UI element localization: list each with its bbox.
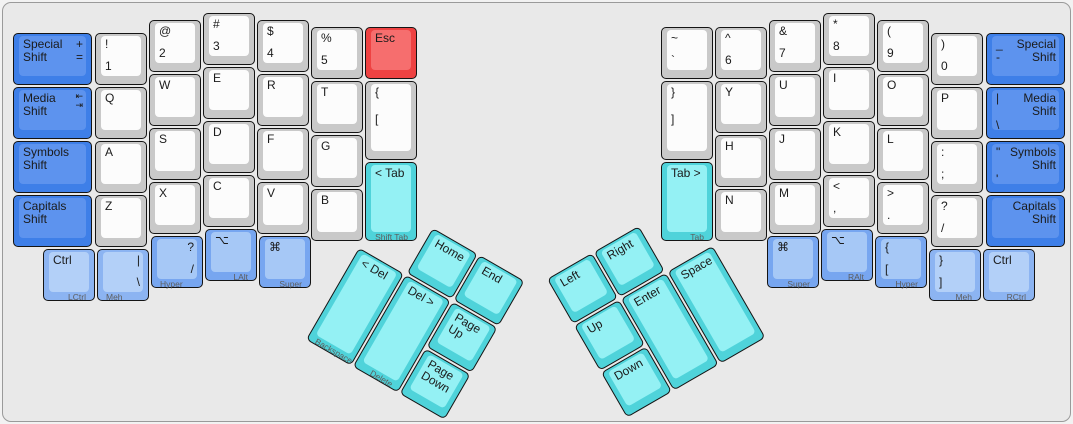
key-7-legend-bottom-left: 7 <box>779 47 786 60</box>
key-a-legend-row-top: A <box>105 146 138 159</box>
key-hyper-left-front-legend-left: Hyper <box>160 280 183 289</box>
key-media-shift-right-face: |Media Shift\ <box>992 90 1059 130</box>
key-hyper-left-legend-row-bottom: / <box>161 263 194 276</box>
key-k[interactable]: K <box>823 121 875 173</box>
key-capitals-shift-left-face: Capitals Shift <box>19 198 86 238</box>
key-lctrl-front-legend-right: LCtrl <box>68 293 86 302</box>
key-2[interactable]: @2 <box>149 20 201 72</box>
key-capitals-shift-right[interactable]: Capitals Shift <box>986 195 1065 247</box>
key-v-legend-row-top: V <box>267 187 300 200</box>
key-left-face: Left <box>553 259 608 314</box>
key-0-legend-top-left: ) <box>941 38 945 51</box>
key-right-legend-top-left: Right <box>604 237 635 263</box>
key-super-right[interactable]: ⌘Super <box>767 236 819 288</box>
key-special-shift-right[interactable]: _ -Special Shift <box>986 33 1065 85</box>
key-rctrl-legend-row-top: Ctrl <box>993 254 1026 267</box>
key-capitals-shift-left-legend-row-top: Capitals Shift <box>23 200 83 227</box>
key-symbols-shift-left[interactable]: Symbols Shift <box>13 141 92 193</box>
key-open-bracket-inner-left-legend-row-top: { <box>375 86 408 99</box>
key-5[interactable]: %5 <box>311 27 363 79</box>
key-meh-left-legend-row-top: | <box>107 254 140 267</box>
key-7-legend-row-bottom: 7 <box>779 47 812 60</box>
key-w-face: W <box>155 77 195 117</box>
key-m-legend-top-left: M <box>779 187 789 200</box>
key-y-face: Y <box>721 84 761 124</box>
key-meh-left[interactable]: |\Meh <box>97 249 149 301</box>
key-super-right-front-legend-right: Super <box>787 280 810 289</box>
key-esc-face: Esc <box>371 30 411 70</box>
key-close-bracket-inner-right[interactable]: }] <box>661 81 713 160</box>
key-meh-right-front-legend-right: Meh <box>955 293 972 302</box>
key-l-legend-top-left: L <box>887 133 894 146</box>
key-tab-right-legend-row-top: Tab > <box>671 167 704 180</box>
key-2-legend-row-bottom: 2 <box>159 47 192 60</box>
key-e-face: E <box>209 70 249 110</box>
key-9-face: (9 <box>883 23 923 63</box>
key-c[interactable]: C <box>203 175 255 227</box>
key-o-face: O <box>883 77 923 117</box>
key-hyper-left[interactable]: ?/Hyper <box>151 236 203 288</box>
key-special-shift-left-legend-row-top: Special Shift+ = <box>23 38 83 65</box>
key-shift-tab[interactable]: < TabShift Tab <box>365 162 417 241</box>
key-special-shift-left-legend-top-left: Special Shift <box>23 38 62 65</box>
key-b[interactable]: B <box>311 189 363 241</box>
key-media-shift-left-legend-row-top: Media Shift⇤ ⇥ <box>23 92 83 119</box>
key-home-legend-row-top: Home <box>432 237 467 265</box>
key-open-bracket-inner-left[interactable]: {[ <box>365 81 417 160</box>
key-rctrl[interactable]: CtrlRCtrl <box>983 249 1035 301</box>
key-k-legend-top-left: K <box>833 126 841 139</box>
key-meh-right[interactable]: }]Meh <box>929 249 981 301</box>
key-close-bracket-inner-right-legend-bottom-left: ] <box>671 113 674 126</box>
key-2-legend-bottom-left: 2 <box>159 47 166 60</box>
key-space-legend-top-left: Space <box>678 254 714 283</box>
key-semicolon[interactable]: :; <box>931 141 983 193</box>
key-semicolon-face: :; <box>937 144 977 184</box>
key-slash-legend-row-bottom: / <box>941 222 974 235</box>
key-u[interactable]: U <box>769 74 821 126</box>
key-r-face: R <box>263 77 303 117</box>
key-symbols-shift-right-face: "Symbols Shift' <box>992 144 1059 184</box>
key-symbols-shift-left-legend-row-top: Symbols Shift <box>23 146 83 173</box>
key-2-legend-row-top: @ <box>159 25 192 38</box>
key-page-down-legend-row-top: Page Down <box>418 358 460 398</box>
key-rctrl-legend-top-left: Ctrl <box>993 254 1012 267</box>
key-super-right-face: ⌘ <box>773 239 813 279</box>
key-9-legend-row-top: ( <box>887 25 920 38</box>
key-hyper-left-legend-bottom-right: / <box>191 263 194 276</box>
key-meh-right-face: }] <box>935 252 975 292</box>
key-p-face: P <box>937 90 977 130</box>
key-7-face: &7 <box>775 23 815 63</box>
key-a-legend-top-left: A <box>105 146 113 159</box>
key-ralt-face: ⌥ <box>827 232 867 272</box>
key-media-shift-left-legend-top-left: Media Shift <box>23 92 56 119</box>
key-special-shift-right-legend-top-right: Special Shift <box>1017 38 1056 65</box>
key-f-legend-top-left: F <box>267 133 274 146</box>
key-symbols-shift-right[interactable]: "Symbols Shift' <box>986 141 1065 193</box>
key-m[interactable]: M <box>769 182 821 234</box>
key-period-legend-bottom-left: . <box>887 209 890 222</box>
key-6[interactable]: ^6 <box>715 27 767 79</box>
key-x-legend-row-top: X <box>159 187 192 200</box>
key-lalt-front-legend-right: LAlt <box>233 273 248 282</box>
key-5-legend-bottom-left: 5 <box>321 54 328 67</box>
key-super-right-legend-row-top: ⌘ <box>777 241 810 254</box>
key-esc-legend-row-top: Esc <box>375 32 408 45</box>
key-o-legend-top-left: O <box>887 79 896 92</box>
key-period[interactable]: >. <box>877 182 929 234</box>
key-0-face: )0 <box>937 36 977 76</box>
key-0[interactable]: )0 <box>931 33 983 85</box>
key-hyper-right-front-legend-right: Hyper <box>895 280 918 289</box>
key-7-legend-top-left: & <box>779 25 787 38</box>
key-r[interactable]: R <box>257 74 309 126</box>
key-media-shift-left[interactable]: Media Shift⇤ ⇥ <box>13 87 92 139</box>
key-esc[interactable]: Esc <box>365 27 417 79</box>
key-super-left[interactable]: ⌘Super <box>259 236 311 288</box>
key-page-up-legend-row-top: Page Up <box>445 311 487 351</box>
key-h-face: H <box>721 138 761 178</box>
key-media-shift-right-legend-row-bottom: \ <box>996 119 1056 130</box>
key-tab-right-face: Tab > <box>667 165 707 232</box>
key-shift-tab-face: < Tab <box>371 165 411 232</box>
key-v-legend-top-left: V <box>267 187 275 200</box>
key-grave[interactable]: ~` <box>661 27 713 79</box>
key-left-legend-row-top: Left <box>558 262 593 290</box>
key-h-legend-row-top: H <box>725 140 758 153</box>
key-j-face: J <box>775 131 815 171</box>
key-shift-tab-legend-top-left: < Tab <box>375 167 404 180</box>
key-open-bracket-inner-left-face: {[ <box>371 84 411 151</box>
key-semicolon-legend-row-top: : <box>941 146 974 159</box>
key-i[interactable]: I <box>823 67 875 119</box>
key-3-legend-row-bottom: 3 <box>213 40 246 53</box>
key-media-shift-right-legend-bottom-left: \ <box>996 119 999 130</box>
key-6-legend-row-bottom: 6 <box>725 54 758 67</box>
key-e-legend-row-top: E <box>213 72 246 85</box>
key-8-legend-bottom-left: 8 <box>833 40 840 53</box>
key-period-legend-top-left: > <box>887 187 894 200</box>
key-comma-legend-row-top: < <box>833 180 866 193</box>
key-period-legend-row-bottom: . <box>887 209 920 222</box>
key-capitals-shift-left-legend-top-left: Capitals Shift <box>23 200 66 227</box>
key-j-legend-row-top: J <box>779 133 812 146</box>
key-m-face: M <box>775 185 815 225</box>
key-f-legend-row-top: F <box>267 133 300 146</box>
key-7[interactable]: &7 <box>769 20 821 72</box>
key-meh-left-face: |\ <box>103 252 143 292</box>
key-media-shift-right[interactable]: |Media Shift\ <box>986 87 1065 139</box>
key-lctrl-legend-top-left: Ctrl <box>53 254 72 267</box>
key-hyper-left-legend-top-right: ? <box>187 241 194 254</box>
key-s-legend-top-left: S <box>159 133 167 146</box>
key-n-face: N <box>721 192 761 232</box>
key-esc-legend-top-left: Esc <box>375 32 395 45</box>
key-t-legend-top-left: T <box>321 86 328 99</box>
key-4-face: $4 <box>263 23 303 63</box>
key-lalt-face: ⌥ <box>211 232 251 272</box>
key-g[interactable]: G <box>311 135 363 187</box>
key-j-legend-top-left: J <box>779 133 785 146</box>
key-space-legend-row-top: Space <box>678 255 713 283</box>
command-icon: ⌘ <box>269 241 281 254</box>
key-t-legend-row-top: T <box>321 86 354 99</box>
key-ralt[interactable]: ⌥RAlt <box>821 229 873 281</box>
key-t-face: T <box>317 84 357 124</box>
key-u-legend-top-left: U <box>779 79 788 92</box>
key-5-legend-top-left: % <box>321 32 332 45</box>
key-meh-left-front-legend-left: Meh <box>106 293 123 302</box>
option-icon: ⌥ <box>215 234 229 247</box>
key-n[interactable]: N <box>715 189 767 241</box>
key-open-bracket-inner-left-legend-bottom-left: [ <box>375 113 378 126</box>
key-y-legend-top-left: Y <box>725 86 733 99</box>
key-hyper-right-legend-top-left: { <box>885 241 889 254</box>
key-2-legend-top-left: @ <box>159 25 171 38</box>
key-g-face: G <box>317 138 357 178</box>
key-3-legend-row-top: # <box>213 18 246 31</box>
key-8-legend-top-left: * <box>833 18 838 31</box>
key-hyper-right-legend-bottom-left: [ <box>885 263 888 276</box>
key-u-face: U <box>775 77 815 117</box>
key-symbols-shift-right-legend-bottom-left: ' <box>996 173 998 184</box>
key-4-legend-top-left: $ <box>267 25 274 38</box>
key-grave-legend-row-top: ~ <box>671 32 704 45</box>
key-slash[interactable]: ?/ <box>931 195 983 247</box>
key-lctrl-face: Ctrl <box>49 252 89 292</box>
key-s[interactable]: S <box>149 128 201 180</box>
key-ralt-legend-row-top: ⌥ <box>831 234 864 247</box>
key-grave-face: ~` <box>667 30 707 70</box>
key-page-down-legend-top-left: Page Down <box>418 358 460 398</box>
key-meh-left-legend-top-right: | <box>137 254 140 267</box>
key-period-face: >. <box>883 185 923 225</box>
key-a-face: A <box>101 144 141 184</box>
key-1-legend-top-left: ! <box>105 38 108 51</box>
key-hyper-right[interactable]: {[Hyper <box>875 236 927 288</box>
key-media-shift-right-legend-top-right: Media Shift <box>1023 92 1056 119</box>
key-1[interactable]: !1 <box>95 33 147 85</box>
key-n-legend-row-top: N <box>725 194 758 207</box>
key-i-legend-row-top: I <box>833 72 866 85</box>
key-symbols-shift-left-legend-top-left: Symbols Shift <box>23 146 69 173</box>
key-2-face: @2 <box>155 23 195 63</box>
key-5-face: %5 <box>317 30 357 70</box>
key-super-left-face: ⌘ <box>265 239 305 279</box>
key-capitals-shift-left[interactable]: Capitals Shift <box>13 195 92 247</box>
key-media-shift-left-face: Media Shift⇤ ⇥ <box>19 90 86 130</box>
key-z-legend-top-left: Z <box>105 200 112 213</box>
key-close-bracket-inner-right-legend-row-bottom: ] <box>671 113 704 126</box>
key-end-legend-top-left: End <box>479 264 504 286</box>
key-g-legend-row-top: G <box>321 140 354 153</box>
key-home-legend-top-left: Home <box>432 237 466 265</box>
key-3[interactable]: #3 <box>203 13 255 65</box>
key-0-legend-row-bottom: 0 <box>941 60 974 73</box>
key-grave-legend-bottom-left: ` <box>671 54 675 67</box>
key-hyper-left-face: ?/ <box>157 239 197 279</box>
key-slash-legend-row-top: ? <box>941 200 974 213</box>
key-8-face: *8 <box>829 16 869 56</box>
key-left-legend-top-left: Left <box>558 268 582 290</box>
key-c-legend-row-top: C <box>213 180 246 193</box>
key-q-legend-row-top: Q <box>105 92 138 105</box>
key-3-face: #3 <box>209 16 249 56</box>
key-capitals-shift-right-face: Capitals Shift <box>992 198 1059 238</box>
key-rctrl-front-legend-right: RCtrl <box>1007 293 1026 302</box>
key-close-bracket-inner-right-legend-top-left: } <box>671 86 675 99</box>
key-lalt[interactable]: ⌥LAlt <box>205 229 257 281</box>
key-backspace-legend-top-left: < Del <box>358 257 389 283</box>
key-symbols-shift-right-legend-top-left: " <box>996 146 1000 173</box>
key-0-legend-bottom-left: 0 <box>941 60 948 73</box>
key-shift-tab-legend-row-top: < Tab <box>375 167 408 180</box>
key-r-legend-row-top: R <box>267 79 300 92</box>
key-grave-legend-top-left: ~ <box>671 32 678 45</box>
key-meh-right-legend-bottom-left: ] <box>939 276 942 289</box>
key-tab-right-front-legend-right: Tab <box>690 233 704 242</box>
key-1-legend-bottom-left: 1 <box>105 60 112 73</box>
key-8-legend-row-top: * <box>833 18 866 31</box>
key-open-bracket-inner-left-legend-row-bottom: [ <box>375 113 408 126</box>
key-comma-face: <, <box>829 178 869 218</box>
key-v-face: V <box>263 185 303 225</box>
key-5-legend-row-top: % <box>321 32 354 45</box>
key-5-legend-row-bottom: 5 <box>321 54 354 67</box>
key-8[interactable]: *8 <box>823 13 875 65</box>
key-4-legend-bottom-left: 4 <box>267 47 274 60</box>
key-9-legend-top-left: ( <box>887 25 891 38</box>
key-o[interactable]: O <box>877 74 929 126</box>
key-h[interactable]: H <box>715 135 767 187</box>
key-special-shift-right-legend-row-top: _ -Special Shift <box>996 38 1056 65</box>
key-l[interactable]: L <box>877 128 929 180</box>
key-x[interactable]: X <box>149 182 201 234</box>
key-z[interactable]: Z <box>95 195 147 247</box>
key-b-legend-row-top: B <box>321 194 354 207</box>
key-y-legend-row-top: Y <box>725 86 758 99</box>
key-a[interactable]: A <box>95 141 147 193</box>
key-comma-legend-bottom-left: , <box>833 202 836 215</box>
key-comma-legend-row-bottom: , <box>833 202 866 215</box>
key-4[interactable]: $4 <box>257 20 309 72</box>
key-q-face: Q <box>101 90 141 130</box>
key-grave-legend-row-bottom: ` <box>671 54 704 67</box>
key-z-legend-row-top: Z <box>105 200 138 213</box>
command-icon: ⌘ <box>777 241 789 254</box>
key-c-legend-top-left: C <box>213 180 222 193</box>
key-u-legend-row-top: U <box>779 79 812 92</box>
key-comma[interactable]: <, <box>823 175 875 227</box>
key-special-shift-right-face: _ -Special Shift <box>992 36 1059 76</box>
key-j[interactable]: J <box>769 128 821 180</box>
key-8-legend-row-bottom: 8 <box>833 40 866 53</box>
key-o-legend-row-top: O <box>887 79 920 92</box>
key-y[interactable]: Y <box>715 81 767 133</box>
tab-arrows-icon: ⇤ ⇥ <box>75 92 83 119</box>
key-special-shift-right-legend-top-left: _ - <box>996 38 1003 65</box>
key-d-legend-top-left: D <box>213 126 222 139</box>
key-e-legend-top-left: E <box>213 72 221 85</box>
key-meh-left-legend-row-bottom: \ <box>107 276 140 289</box>
key-d-legend-row-top: D <box>213 126 246 139</box>
key-f-face: F <box>263 131 303 171</box>
key-i-face: I <box>829 70 869 110</box>
key-s-face: S <box>155 131 195 171</box>
key-semicolon-legend-bottom-left: ; <box>941 168 944 181</box>
key-z-face: Z <box>101 198 141 238</box>
key-6-legend-bottom-left: 6 <box>725 54 732 67</box>
key-lctrl[interactable]: CtrlLCtrl <box>43 249 95 301</box>
key-w-legend-top-left: W <box>159 79 170 92</box>
key-b-face: B <box>317 192 357 232</box>
key-3-legend-bottom-left: 3 <box>213 40 220 53</box>
key-b-legend-top-left: B <box>321 194 329 207</box>
key-open-bracket-inner-left-legend-top-left: { <box>375 86 379 99</box>
key-6-legend-top-left: ^ <box>725 32 731 45</box>
key-tab-right[interactable]: Tab >Tab <box>661 162 713 241</box>
key-special-shift-left[interactable]: Special Shift+ = <box>13 33 92 85</box>
key-super-left-legend-row-top: ⌘ <box>269 241 302 254</box>
key-capitals-shift-right-legend-top-right: Capitals Shift <box>1013 200 1056 227</box>
key-d-face: D <box>209 124 249 164</box>
key-p[interactable]: P <box>931 87 983 139</box>
key-slash-legend-bottom-left: / <box>941 222 944 235</box>
key-slash-face: ?/ <box>937 198 977 238</box>
key-v[interactable]: V <box>257 182 309 234</box>
key-ralt-front-legend-right: RAlt <box>848 273 864 282</box>
key-w[interactable]: W <box>149 74 201 126</box>
key-q[interactable]: Q <box>95 87 147 139</box>
key-capitals-shift-right-legend-row-top: Capitals Shift <box>996 200 1056 227</box>
key-q-legend-top-left: Q <box>105 92 114 105</box>
key-right-legend-row-top: Right <box>604 235 639 263</box>
key-i-legend-top-left: I <box>833 72 836 85</box>
key-symbols-shift-right-legend-row-bottom: ' <box>996 173 1056 184</box>
key-l-legend-row-top: L <box>887 133 920 146</box>
key-period-legend-row-top: > <box>887 187 920 200</box>
key-k-legend-row-top: K <box>833 126 866 139</box>
key-f[interactable]: F <box>257 128 309 180</box>
key-page-up-legend-top-left: Page Up <box>445 311 487 351</box>
key-9[interactable]: (9 <box>877 20 929 72</box>
key-x-legend-top-left: X <box>159 187 167 200</box>
key-g-legend-top-left: G <box>321 140 330 153</box>
key-symbols-shift-right-legend-row-top: "Symbols Shift <box>996 146 1056 173</box>
key-e[interactable]: E <box>203 67 255 119</box>
key-w-legend-row-top: W <box>159 79 192 92</box>
key-t[interactable]: T <box>311 81 363 133</box>
key-4-legend-row-top: $ <box>267 25 300 38</box>
key-1-legend-row-bottom: 1 <box>105 60 138 73</box>
key-meh-right-legend-row-bottom: ] <box>939 276 972 289</box>
key-p-legend-top-left: P <box>941 92 949 105</box>
key-close-bracket-inner-right-legend-row-top: } <box>671 86 704 99</box>
key-comma-legend-top-left: < <box>833 180 840 193</box>
key-lalt-legend-row-top: ⌥ <box>215 234 248 247</box>
key-d[interactable]: D <box>203 121 255 173</box>
key-close-bracket-inner-right-face: }] <box>667 84 707 151</box>
key-right-face: Right <box>600 232 655 287</box>
key-x-face: X <box>155 185 195 225</box>
key-end-face: End <box>463 261 518 316</box>
key-enter-legend-top-left: Enter <box>631 284 663 310</box>
key-1-face: !1 <box>101 36 141 76</box>
key-hyper-left-legend-row-top: ? <box>161 241 194 254</box>
key-end-legend-row-top: End <box>479 264 514 292</box>
key-super-left-front-legend-right: Super <box>279 280 302 289</box>
